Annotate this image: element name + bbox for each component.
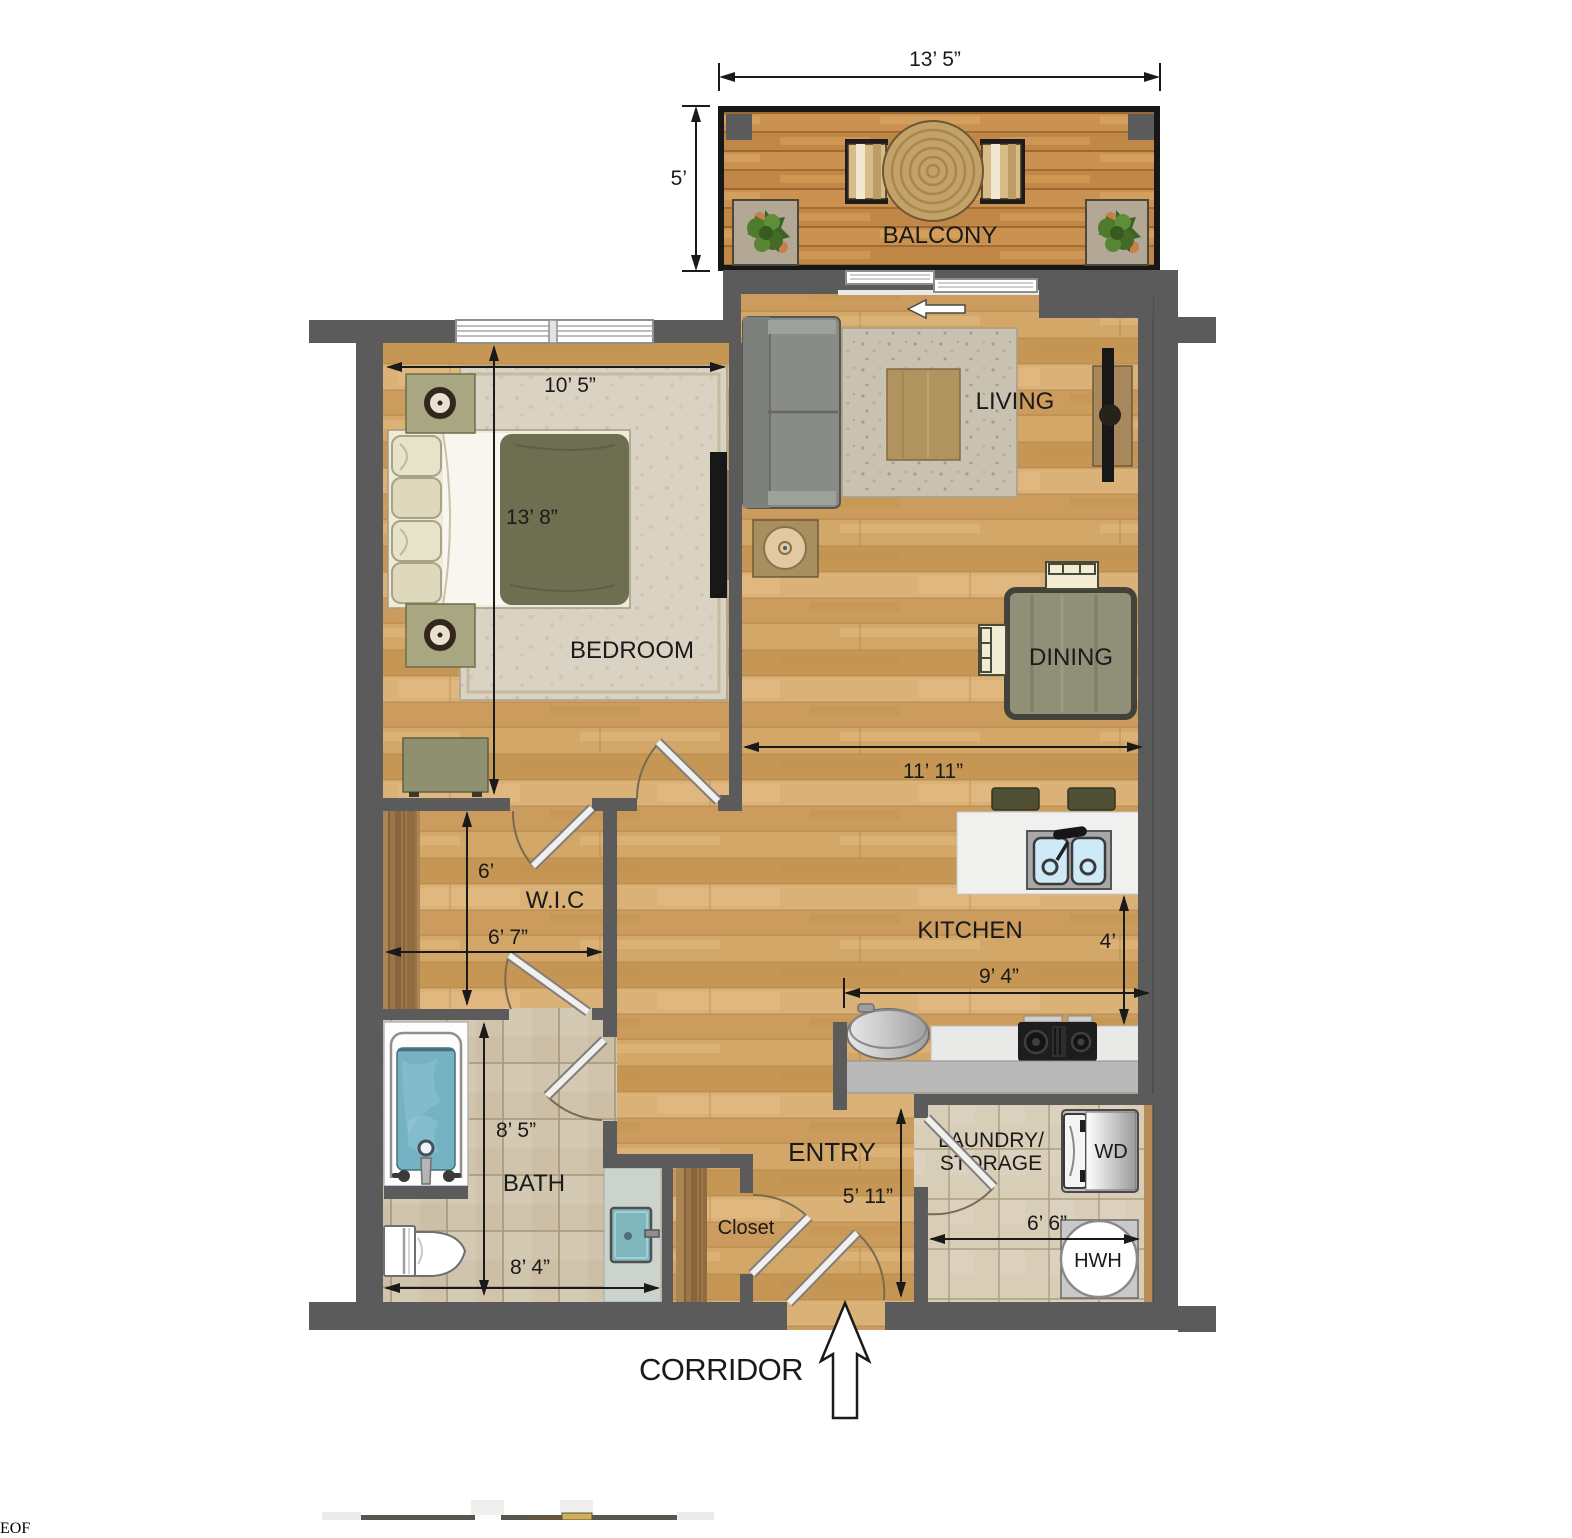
svg-text:WD: WD xyxy=(1094,1141,1127,1163)
svg-text:10’ 5”: 10’ 5” xyxy=(544,374,596,397)
svg-text:STORAGE: STORAGE xyxy=(940,1152,1042,1175)
svg-text:W.I.C: W.I.C xyxy=(526,887,585,914)
svg-text:6’ 7”: 6’ 7” xyxy=(488,926,528,949)
svg-text:CORRIDOR: CORRIDOR xyxy=(639,1352,803,1387)
svg-text:8’ 4”: 8’ 4” xyxy=(510,1256,550,1279)
svg-text:13’ 5”: 13’ 5” xyxy=(909,48,961,71)
svg-text:BEDROOM: BEDROOM xyxy=(570,637,694,664)
svg-text:5’ 11”: 5’ 11” xyxy=(843,1185,893,1208)
svg-text:5’: 5’ xyxy=(671,167,687,190)
svg-text:DINING: DINING xyxy=(1029,644,1113,671)
svg-text:4’: 4’ xyxy=(1100,930,1116,953)
svg-text:LIVING: LIVING xyxy=(976,388,1055,415)
svg-text:KITCHEN: KITCHEN xyxy=(917,917,1022,944)
svg-text:Closet: Closet xyxy=(718,1217,775,1239)
svg-text:BATH: BATH xyxy=(503,1170,565,1197)
svg-text:6’ 6”: 6’ 6” xyxy=(1027,1212,1067,1235)
svg-text:8’ 5”: 8’ 5” xyxy=(496,1119,536,1142)
svg-text:11’ 11”: 11’ 11” xyxy=(903,760,963,783)
svg-text:13’ 8”: 13’ 8” xyxy=(506,506,558,529)
svg-text:6’: 6’ xyxy=(478,860,494,883)
svg-text:ENTRY: ENTRY xyxy=(788,1137,876,1167)
svg-text:BALCONY: BALCONY xyxy=(883,222,998,249)
svg-text:HWH: HWH xyxy=(1074,1250,1122,1272)
svg-text:9’ 4”: 9’ 4” xyxy=(979,965,1019,988)
